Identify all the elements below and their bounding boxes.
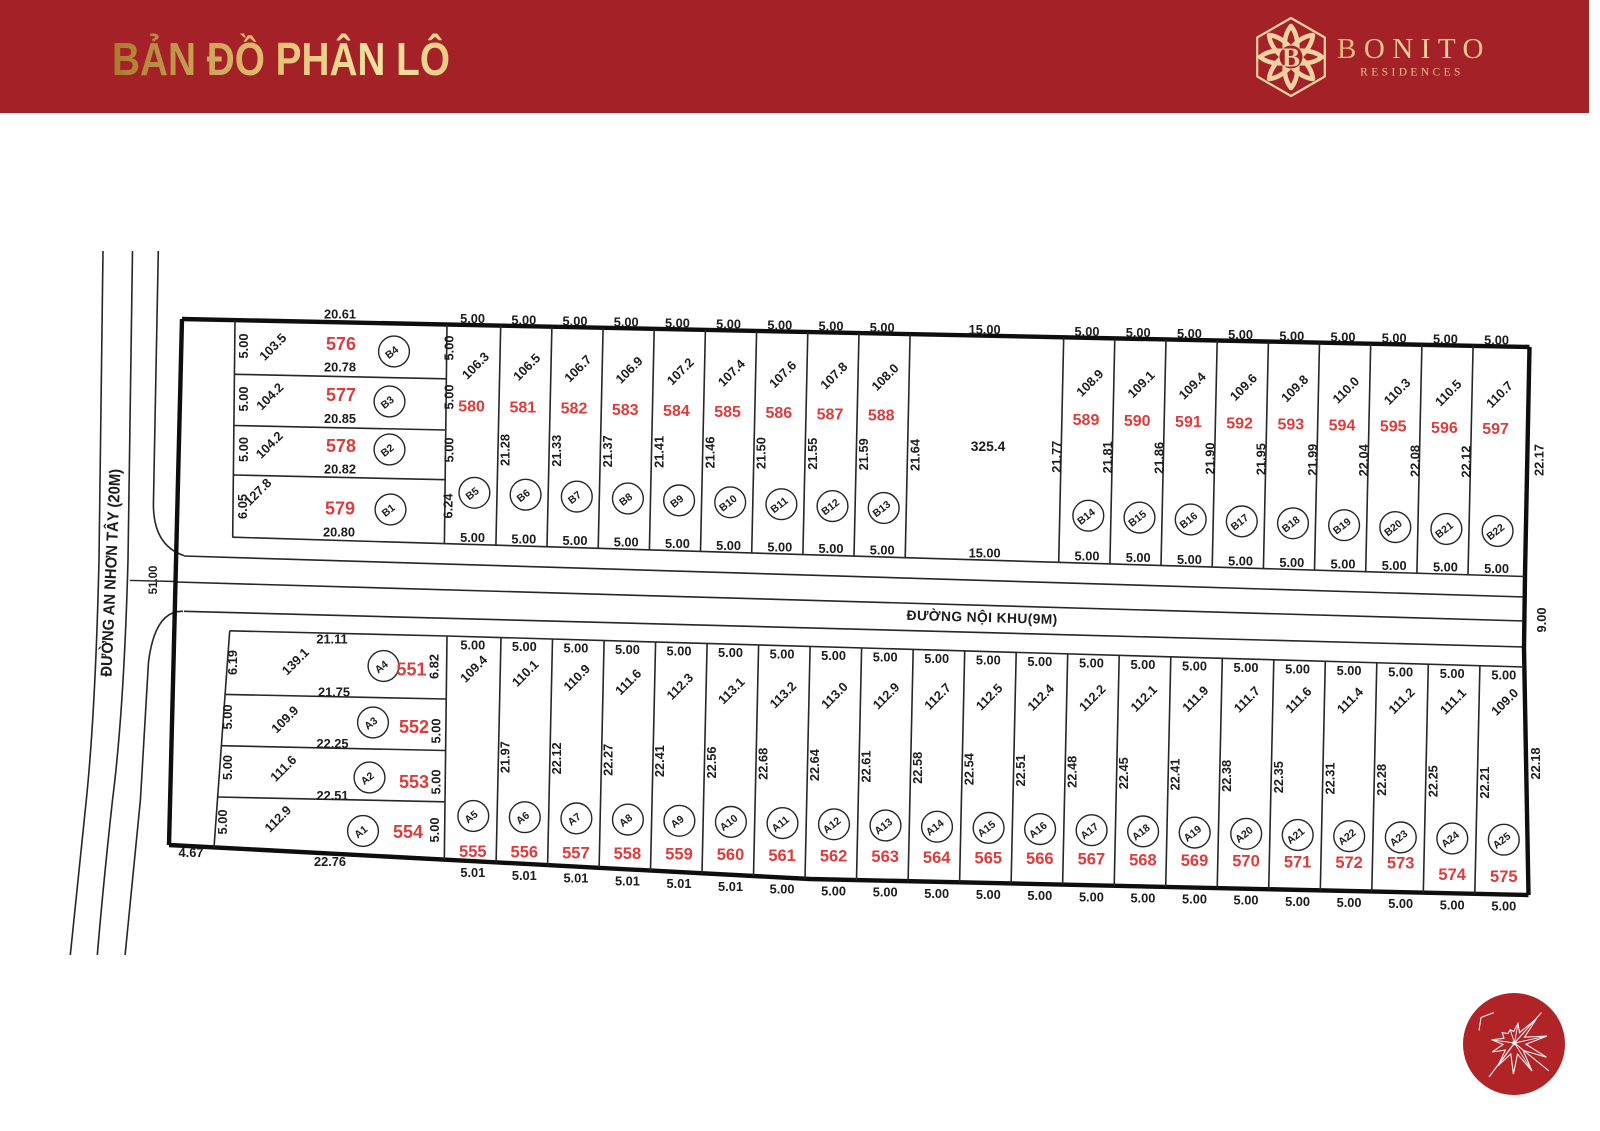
svg-text:5.00: 5.00 (1484, 561, 1509, 576)
svg-text:5.00: 5.00 (427, 818, 442, 843)
svg-text:22.54: 22.54 (962, 752, 977, 785)
svg-text:568: 568 (1129, 851, 1157, 869)
svg-text:5.00: 5.00 (665, 536, 690, 551)
svg-text:21.37: 21.37 (600, 435, 615, 467)
svg-text:22.08: 22.08 (1407, 445, 1422, 477)
svg-text:576: 576 (326, 334, 356, 354)
svg-text:5.00: 5.00 (1433, 560, 1458, 575)
svg-text:5.00: 5.00 (429, 719, 444, 744)
svg-text:5.00: 5.00 (215, 810, 230, 835)
svg-text:5.00: 5.00 (236, 387, 251, 412)
svg-text:20.80: 20.80 (323, 525, 355, 540)
svg-text:558: 558 (614, 845, 642, 863)
svg-text:22.61: 22.61 (858, 750, 873, 782)
svg-text:6.82: 6.82 (427, 654, 442, 679)
svg-text:5.00: 5.00 (220, 755, 235, 780)
svg-text:556: 556 (511, 844, 539, 862)
svg-text:5.00: 5.00 (1228, 327, 1253, 342)
svg-text:565: 565 (975, 849, 1003, 867)
svg-text:5.00: 5.00 (1126, 325, 1151, 340)
svg-text:567: 567 (1078, 851, 1106, 869)
svg-text:5.00: 5.00 (236, 334, 251, 359)
svg-text:5.00: 5.00 (615, 642, 640, 657)
svg-text:22.12: 22.12 (549, 742, 564, 774)
svg-text:588: 588 (868, 407, 895, 424)
svg-text:5.00: 5.00 (924, 886, 949, 901)
svg-text:557: 557 (562, 844, 590, 862)
svg-text:22.27: 22.27 (601, 744, 616, 776)
svg-text:579: 579 (325, 499, 355, 519)
svg-text:22.51: 22.51 (1013, 754, 1028, 786)
svg-text:551: 551 (396, 660, 426, 680)
svg-text:5.00: 5.00 (1228, 553, 1253, 568)
svg-text:561: 561 (768, 847, 796, 865)
svg-text:5.00: 5.00 (716, 538, 741, 553)
svg-text:21.59: 21.59 (856, 438, 871, 470)
svg-text:21.77: 21.77 (1049, 441, 1064, 473)
svg-text:559: 559 (665, 846, 693, 864)
svg-text:5.00: 5.00 (1337, 663, 1362, 678)
svg-text:5.00: 5.00 (442, 336, 457, 361)
svg-text:325.4: 325.4 (971, 439, 1006, 454)
svg-text:5.00: 5.00 (870, 320, 895, 335)
svg-text:5.00: 5.00 (976, 887, 1001, 902)
svg-text:5.00: 5.00 (236, 437, 251, 462)
svg-text:5.00: 5.00 (563, 641, 588, 656)
svg-text:21.95: 21.95 (1254, 443, 1269, 475)
svg-text:5.00: 5.00 (511, 532, 536, 547)
svg-text:589: 589 (1073, 412, 1100, 429)
svg-text:593: 593 (1277, 416, 1304, 433)
svg-text:584: 584 (663, 403, 690, 420)
svg-text:566: 566 (1026, 850, 1054, 868)
svg-text:5.00: 5.00 (563, 313, 588, 328)
svg-text:22.31: 22.31 (1322, 762, 1337, 794)
svg-text:22.25: 22.25 (316, 736, 348, 751)
svg-text:5.00: 5.00 (563, 533, 588, 548)
svg-text:22.48: 22.48 (1065, 756, 1080, 788)
svg-text:5.00: 5.00 (460, 530, 485, 545)
svg-text:5.00: 5.00 (1177, 552, 1202, 567)
svg-text:5.00: 5.00 (667, 644, 692, 659)
svg-text:5.00: 5.00 (614, 535, 639, 550)
svg-text:RESIDENCES: RESIDENCES (1360, 67, 1464, 79)
svg-text:5.01: 5.01 (718, 879, 743, 894)
svg-text:594: 594 (1329, 418, 1356, 435)
svg-text:5.00: 5.00 (1285, 662, 1310, 677)
svg-text:5.00: 5.00 (512, 639, 537, 654)
svg-text:5.00: 5.00 (770, 882, 795, 897)
svg-text:22.41: 22.41 (652, 745, 667, 777)
svg-text:5.00: 5.00 (1388, 665, 1413, 680)
svg-text:5.00: 5.00 (442, 385, 457, 410)
svg-text:5.01: 5.01 (460, 865, 485, 880)
svg-text:22.51: 22.51 (316, 788, 348, 803)
svg-text:15.00: 15.00 (969, 546, 1001, 561)
svg-text:586: 586 (765, 405, 792, 422)
svg-text:22.56: 22.56 (704, 746, 719, 778)
svg-text:596: 596 (1431, 420, 1458, 437)
svg-text:5.00: 5.00 (1331, 557, 1356, 572)
svg-text:21.75: 21.75 (318, 685, 350, 700)
svg-text:552: 552 (399, 717, 429, 737)
svg-text:51.00: 51.00 (148, 566, 160, 595)
svg-text:22.28: 22.28 (1374, 764, 1389, 796)
svg-text:6.19: 6.19 (225, 650, 240, 675)
svg-text:21.86: 21.86 (1151, 442, 1166, 474)
svg-text:6.24: 6.24 (441, 493, 456, 519)
svg-text:5.01: 5.01 (667, 876, 692, 891)
svg-text:564: 564 (923, 849, 951, 867)
svg-text:21.81: 21.81 (1100, 441, 1115, 473)
svg-text:20.78: 20.78 (324, 360, 356, 375)
svg-text:5.00: 5.00 (718, 645, 743, 660)
svg-text:597: 597 (1482, 421, 1509, 438)
svg-text:5.00: 5.00 (460, 311, 485, 326)
svg-text:582: 582 (561, 401, 588, 418)
svg-text:21.97: 21.97 (498, 741, 513, 773)
svg-text:581: 581 (509, 400, 536, 417)
svg-text:20.82: 20.82 (324, 462, 356, 477)
svg-text:20.61: 20.61 (324, 307, 356, 322)
svg-text:5.00: 5.00 (1440, 666, 1465, 681)
svg-text:21.46: 21.46 (703, 436, 718, 468)
svg-text:5.00: 5.00 (1027, 654, 1052, 669)
svg-text:555: 555 (459, 843, 487, 861)
svg-text:21.99: 21.99 (1305, 444, 1320, 476)
svg-text:587: 587 (817, 406, 844, 423)
svg-text:5.00: 5.00 (1491, 667, 1516, 682)
svg-text:22.68: 22.68 (755, 748, 770, 780)
svg-text:5.00: 5.00 (665, 316, 690, 331)
svg-text:5.00: 5.00 (1382, 330, 1407, 345)
svg-text:5.00: 5.00 (1279, 555, 1304, 570)
svg-text:5.00: 5.00 (976, 653, 1001, 668)
svg-text:5.00: 5.00 (1388, 896, 1413, 911)
svg-text:22.58: 22.58 (910, 752, 925, 784)
svg-text:5.00: 5.00 (821, 648, 846, 663)
svg-text:5.00: 5.00 (770, 647, 795, 662)
svg-text:22.18: 22.18 (1528, 747, 1543, 779)
svg-text:5.00: 5.00 (767, 318, 792, 333)
svg-text:21.33: 21.33 (549, 435, 564, 467)
svg-text:5.00: 5.00 (1075, 324, 1100, 339)
svg-text:574: 574 (1438, 866, 1466, 884)
svg-text:22.12: 22.12 (1459, 446, 1474, 478)
svg-text:5.00: 5.00 (873, 885, 898, 900)
svg-text:578: 578 (326, 436, 356, 456)
svg-text:5.00: 5.00 (1285, 894, 1310, 909)
svg-text:5.00: 5.00 (460, 638, 485, 653)
svg-text:BONITO: BONITO (1337, 33, 1491, 65)
svg-text:5.00: 5.00 (924, 651, 949, 666)
svg-text:590: 590 (1124, 413, 1151, 430)
svg-text:553: 553 (399, 772, 429, 792)
svg-text:572: 572 (1335, 854, 1363, 872)
svg-text:5.00: 5.00 (1279, 328, 1304, 343)
svg-text:22.21: 22.21 (1477, 767, 1492, 799)
svg-text:5.00: 5.00 (1234, 893, 1259, 908)
svg-text:554: 554 (393, 822, 423, 842)
svg-text:562: 562 (820, 848, 848, 866)
svg-text:5.00: 5.00 (1182, 659, 1207, 674)
svg-text:5.00: 5.00 (1331, 329, 1356, 344)
svg-text:15.00: 15.00 (969, 322, 1001, 337)
svg-text:5.00: 5.00 (614, 314, 639, 329)
svg-text:22.25: 22.25 (1425, 765, 1440, 797)
svg-text:5.00: 5.00 (873, 650, 898, 665)
svg-text:21.50: 21.50 (754, 437, 769, 469)
svg-text:22.41: 22.41 (1168, 758, 1183, 790)
svg-text:577: 577 (326, 385, 356, 405)
svg-text:5.00: 5.00 (429, 770, 444, 795)
svg-text:5.00: 5.00 (716, 317, 741, 332)
svg-text:5.00: 5.00 (1130, 657, 1155, 672)
svg-text:5.00: 5.00 (1126, 550, 1151, 565)
svg-text:21.28: 21.28 (498, 434, 513, 466)
svg-text:5.00: 5.00 (819, 541, 844, 556)
svg-text:575: 575 (1490, 868, 1518, 886)
svg-text:B: B (1282, 43, 1300, 73)
svg-text:5.00: 5.00 (1433, 332, 1458, 347)
svg-text:5.01: 5.01 (563, 871, 588, 886)
svg-text:5.00: 5.00 (1130, 890, 1155, 905)
svg-text:585: 585 (714, 404, 741, 421)
svg-text:591: 591 (1175, 414, 1202, 431)
svg-text:5.01: 5.01 (615, 873, 640, 888)
svg-text:5.00: 5.00 (442, 438, 457, 463)
svg-text:22.04: 22.04 (1356, 443, 1371, 476)
svg-text:21.55: 21.55 (805, 438, 820, 470)
svg-text:21.64: 21.64 (907, 438, 922, 471)
svg-text:22.35: 22.35 (1271, 761, 1286, 793)
svg-text:5.00: 5.00 (1440, 897, 1465, 912)
svg-text:560: 560 (717, 846, 745, 864)
svg-text:5.00: 5.00 (1177, 326, 1202, 341)
svg-text:5.00: 5.00 (819, 319, 844, 334)
svg-text:22.64: 22.64 (807, 748, 822, 781)
svg-text:5.00: 5.00 (1079, 656, 1104, 671)
svg-text:21.90: 21.90 (1203, 442, 1218, 474)
svg-text:22.17: 22.17 (1532, 444, 1547, 476)
svg-text:569: 569 (1181, 852, 1209, 870)
svg-text:5.00: 5.00 (220, 705, 235, 730)
svg-text:5.00: 5.00 (1182, 892, 1207, 907)
svg-text:5.00: 5.00 (1027, 888, 1052, 903)
svg-text:563: 563 (871, 848, 899, 866)
svg-text:571: 571 (1284, 853, 1312, 871)
svg-text:583: 583 (612, 402, 639, 419)
svg-text:595: 595 (1380, 419, 1407, 436)
svg-text:22.76: 22.76 (314, 854, 346, 869)
svg-text:5.00: 5.00 (1491, 898, 1516, 913)
svg-text:5.00: 5.00 (1075, 549, 1100, 564)
svg-text:5.00: 5.00 (1079, 889, 1104, 904)
svg-text:21.11: 21.11 (316, 632, 347, 647)
svg-text:4.67: 4.67 (179, 845, 204, 860)
svg-text:BẢN ĐỒ PHÂN LÔ: BẢN ĐỒ PHÂN LÔ (112, 33, 450, 85)
svg-text:22.45: 22.45 (1116, 757, 1131, 789)
svg-text:5.00: 5.00 (1382, 558, 1407, 573)
svg-text:22.38: 22.38 (1219, 760, 1234, 792)
svg-text:580: 580 (458, 398, 485, 415)
svg-text:5.00: 5.00 (1234, 660, 1259, 675)
svg-text:5.00: 5.00 (870, 542, 895, 557)
svg-text:9.00: 9.00 (1534, 608, 1549, 633)
svg-text:21.41: 21.41 (651, 436, 666, 468)
svg-text:5.00: 5.00 (1484, 333, 1509, 348)
svg-text:573: 573 (1387, 855, 1415, 873)
svg-text:592: 592 (1226, 415, 1253, 432)
svg-text:5.00: 5.00 (821, 884, 846, 899)
svg-text:5.01: 5.01 (512, 868, 537, 883)
svg-text:5.00: 5.00 (511, 312, 536, 327)
svg-text:570: 570 (1232, 853, 1260, 871)
svg-text:5.00: 5.00 (767, 539, 792, 554)
svg-text:5.00: 5.00 (1337, 895, 1362, 910)
svg-text:20.85: 20.85 (324, 411, 356, 426)
